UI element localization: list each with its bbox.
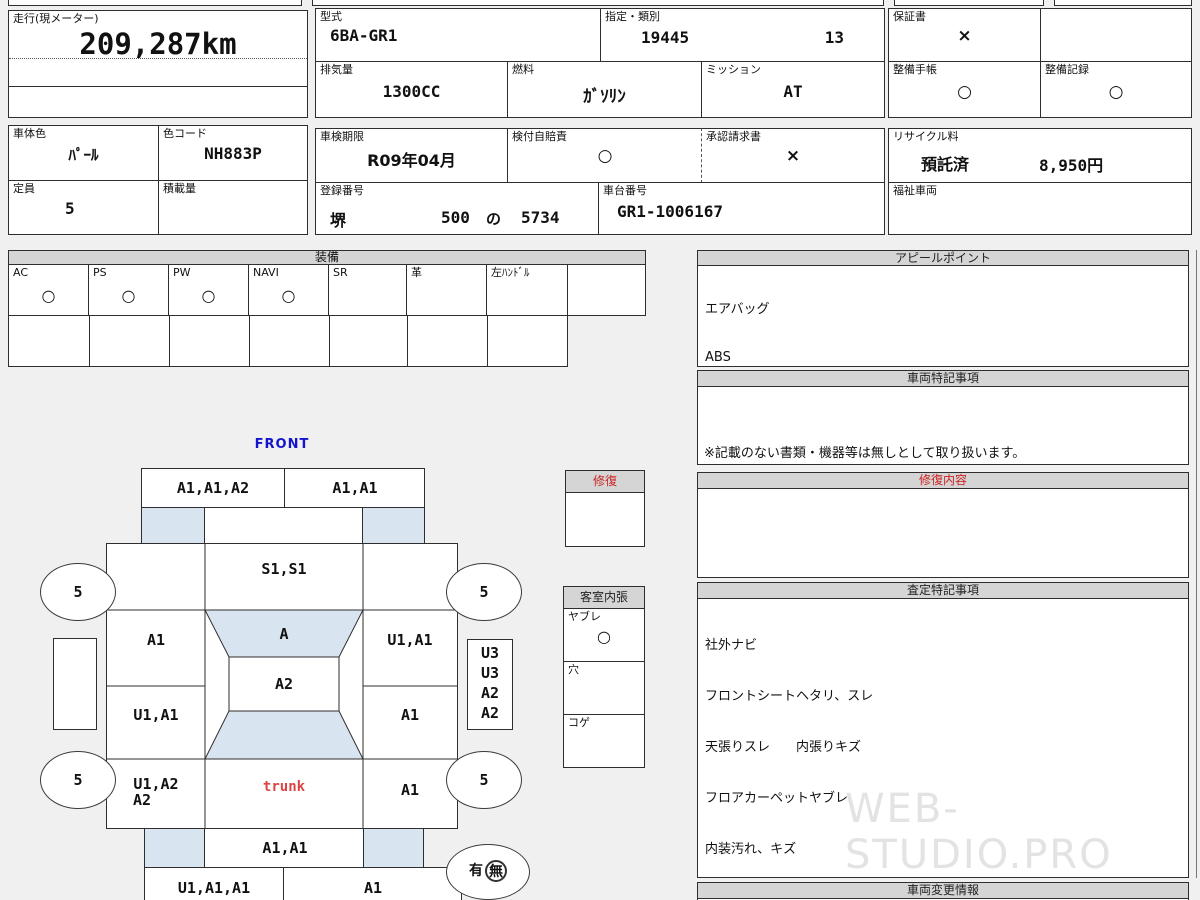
equipment-empty-row bbox=[8, 315, 568, 367]
capacity-label: 定員 bbox=[9, 181, 158, 196]
class-label: 指定・類別 bbox=[601, 9, 884, 24]
warranty-value: × bbox=[889, 26, 1040, 46]
front-bumper-left-codes: A1,A1,A2 bbox=[142, 480, 284, 496]
wheel-front-left: 5 bbox=[40, 563, 116, 621]
capacity-value: 5 bbox=[9, 199, 158, 218]
top-edge-fragment bbox=[894, 0, 1044, 6]
appeal-item: ABS bbox=[705, 350, 1181, 366]
equipment-label: NAVI bbox=[249, 265, 328, 280]
left-row3-line2: A2 bbox=[107, 792, 205, 808]
repair-mini-box: 修復 bbox=[565, 470, 645, 547]
recycle-fee-cell: リサイクル料 預託済 8,950円 bbox=[888, 128, 1192, 183]
spare-no-circled: 無 bbox=[485, 860, 507, 882]
right-side-codes: U3 U3 A2 A2 bbox=[468, 640, 512, 723]
warranty-label: 保証書 bbox=[889, 9, 1040, 24]
interior-row-value: ○ bbox=[564, 627, 644, 646]
maintenance-book-value: ○ bbox=[889, 82, 1040, 102]
jibaiseki-cell: 検付自賠責 ○ bbox=[507, 128, 702, 183]
appeal-points-box: アピールポイント エアバッグ ABS プッシュスタート ETC bbox=[697, 250, 1189, 367]
repair-mini-header: 修復 bbox=[566, 471, 644, 493]
front-label: FRONT bbox=[240, 437, 324, 452]
repair-details-header: 修復内容 bbox=[698, 473, 1188, 489]
wheel-score: 5 bbox=[73, 771, 82, 789]
equipment-cell-pw: PW ○ bbox=[168, 264, 249, 316]
side-code: A2 bbox=[468, 703, 512, 723]
equipment-label: SR bbox=[329, 265, 406, 280]
equipment-label: 革 bbox=[407, 265, 486, 280]
left-row2-codes: U1,A1 bbox=[107, 707, 205, 723]
capacity-cell: 定員 5 bbox=[8, 180, 159, 235]
model-code-cell: 型式 6BA-GR1 bbox=[315, 8, 601, 62]
left-row3-line1: U1,A2 bbox=[107, 776, 205, 792]
maintenance-book-label: 整備手帳 bbox=[889, 62, 1040, 77]
transmission-value: AT bbox=[702, 82, 884, 101]
wheel-score: 5 bbox=[479, 583, 488, 601]
equipment-cell-blank bbox=[567, 264, 646, 316]
divider bbox=[89, 316, 90, 366]
equipment-cell-lhd: 左ﾊﾝﾄﾞﾙ bbox=[486, 264, 568, 316]
maintenance-book-cell: 整備手帳 ○ bbox=[888, 61, 1041, 118]
side-code: U3 bbox=[468, 663, 512, 683]
divider bbox=[249, 316, 250, 366]
assessment-notes-title: 査定特記事項 bbox=[907, 583, 979, 597]
vehicle-notes-header: 車両特記事項 bbox=[698, 371, 1188, 387]
rear-bottom-right-codes: A1 bbox=[283, 880, 463, 896]
empty-cell bbox=[1040, 8, 1192, 62]
equipment-value: ○ bbox=[169, 286, 248, 305]
class-value-1: 19445 bbox=[641, 28, 689, 47]
assessment-item: 天張りスレ 内張りキズ bbox=[705, 739, 1181, 756]
equipment-label bbox=[568, 265, 645, 267]
maintenance-record-cell: 整備記録 ○ bbox=[1040, 61, 1192, 118]
watermark: WEB-STUDIO.PRO bbox=[845, 786, 1200, 878]
rear-left-corner bbox=[145, 829, 205, 867]
recycle-fee-label: リサイクル料 bbox=[889, 129, 1191, 144]
class-cell: 指定・類別 19445 13 bbox=[600, 8, 885, 62]
color-code-value: NH883P bbox=[159, 144, 307, 163]
chassis-number-cell: 車台番号 GR1-1006167 bbox=[598, 182, 885, 235]
wheel-front-right: 5 bbox=[446, 563, 522, 621]
load-capacity-label: 積載量 bbox=[159, 181, 307, 196]
equipment-label: PS bbox=[89, 265, 168, 280]
right-row2-codes: A1 bbox=[363, 707, 457, 723]
top-edge-fragment bbox=[8, 0, 302, 6]
inspection-expiry-label: 車検期限 bbox=[316, 129, 507, 144]
warranty-cell: 保証書 × bbox=[888, 8, 1041, 62]
transmission-cell: ミッション AT bbox=[701, 61, 885, 118]
fuel-label: 燃料 bbox=[508, 62, 701, 77]
equipment-cell-leather: 革 bbox=[406, 264, 487, 316]
front-bumper-right-codes: A1,A1 bbox=[284, 480, 426, 496]
interior-row-ana: 穴 bbox=[564, 662, 644, 715]
displacement-value: 1300CC bbox=[316, 82, 507, 101]
class-value-2: 13 bbox=[825, 28, 844, 47]
fuel-cell: 燃料 ｶﾞｿﾘﾝ bbox=[507, 61, 702, 118]
top-edge-fragment bbox=[312, 0, 884, 6]
right-row1-codes: U1,A1 bbox=[363, 632, 457, 648]
interior-header: 客室内張 bbox=[564, 587, 644, 609]
divider bbox=[169, 316, 170, 366]
assessment-item: 社外ナビ bbox=[705, 637, 1181, 654]
equipment-value: ○ bbox=[249, 286, 328, 305]
rear-window-shape bbox=[205, 711, 363, 759]
right-margin-line bbox=[1196, 250, 1197, 878]
side-code: U3 bbox=[468, 643, 512, 663]
approval-request-cell: 承認請求書 × bbox=[701, 128, 885, 183]
body-color-value: ﾊﾟｰﾙ bbox=[9, 144, 158, 165]
interior-row-yabure: ヤブレ ○ bbox=[564, 609, 644, 662]
front-left-corner bbox=[142, 508, 205, 543]
appeal-item: エアバッグ bbox=[705, 302, 1181, 318]
front-fender-strip bbox=[141, 507, 425, 544]
body-color-cell: 車体色 ﾊﾟｰﾙ bbox=[8, 125, 159, 181]
equipment-cell-sr: SR bbox=[328, 264, 407, 316]
color-code-cell: 色コード NH883P bbox=[158, 125, 308, 181]
equipment-header: 装備 bbox=[8, 250, 646, 265]
rear-bottom-row: U1,A1,A1 A1 bbox=[144, 867, 462, 900]
inspection-expiry-value: R09年04月 bbox=[316, 147, 507, 171]
odometer-value: 209,287km bbox=[9, 27, 307, 61]
right-side-codes-box: U3 U3 A2 A2 bbox=[467, 639, 513, 730]
chassis-number-label: 車台番号 bbox=[599, 183, 884, 198]
appeal-points-header: アピールポイント bbox=[698, 251, 1188, 266]
transmission-label: ミッション bbox=[702, 62, 884, 77]
rear-bumper: A1,A1 bbox=[144, 828, 424, 868]
registration-number-cell: 登録番号 堺 500 の 5734 bbox=[315, 182, 599, 235]
wheel-rear-left: 5 bbox=[40, 751, 116, 809]
repair-mini-title: 修復 bbox=[593, 474, 617, 488]
front-right-corner bbox=[362, 508, 424, 543]
spare-yes-label: 有 bbox=[469, 863, 483, 879]
reg-class: 500 bbox=[441, 208, 470, 227]
recycle-amount: 8,950円 bbox=[1039, 152, 1103, 176]
interior-row-koge: コゲ bbox=[564, 715, 644, 767]
left-row3-codes: U1,A2 A2 bbox=[107, 776, 205, 808]
spare-indicator: 有無 bbox=[446, 844, 530, 900]
appeal-points-title: アピールポイント bbox=[895, 251, 991, 265]
change-info-box: 車両変更情報 bbox=[697, 882, 1189, 900]
divider bbox=[9, 86, 307, 87]
auction-sheet: 走行(現メーター) 209,287km 車体色 ﾊﾟｰﾙ 色コード NH883P… bbox=[0, 0, 1200, 900]
model-code-label: 型式 bbox=[316, 9, 600, 24]
color-code-label: 色コード bbox=[159, 126, 307, 141]
windshield-code: A bbox=[205, 626, 363, 642]
recycle-status: 預託済 bbox=[921, 151, 969, 175]
body-color-label: 車体色 bbox=[9, 126, 158, 141]
odometer-cell: 走行(現メーター) 209,287km bbox=[8, 10, 308, 118]
equipment-title: 装備 bbox=[9, 251, 645, 264]
reg-number: 5734 bbox=[521, 208, 560, 227]
interior-title: 客室内張 bbox=[580, 590, 628, 604]
right-row3-codes: A1 bbox=[363, 782, 457, 798]
approval-request-label: 承認請求書 bbox=[702, 129, 884, 144]
inspection-expiry-cell: 車検期限 R09年04月 bbox=[315, 128, 508, 183]
equipment-cell-ac: AC ○ bbox=[8, 264, 89, 316]
rear-bumper-codes: A1,A1 bbox=[205, 840, 365, 856]
displacement-cell: 排気量 1300CC bbox=[315, 61, 508, 118]
interior-row-label: コゲ bbox=[564, 715, 644, 730]
model-code-value: 6BA-GR1 bbox=[316, 26, 600, 45]
odometer-label: 走行(現メーター) bbox=[9, 11, 307, 26]
top-edge-fragment bbox=[1054, 0, 1192, 6]
rear-bottom-left-codes: U1,A1,A1 bbox=[145, 880, 283, 896]
repair-details-box: 修復内容 bbox=[697, 472, 1189, 578]
interior-box: 客室内張 ヤブレ ○ 穴 コゲ bbox=[563, 586, 645, 768]
hood-codes: S1,S1 bbox=[205, 561, 363, 577]
vehicle-notes-title: 車両特記事項 bbox=[907, 371, 979, 385]
fuel-value: ｶﾞｿﾘﾝ bbox=[508, 82, 701, 107]
vehicle-notes-box: 車両特記事項 ※記載のない書類・機器等は無しとして取り扱います。 bbox=[697, 370, 1189, 465]
change-info-header: 車両変更情報 bbox=[698, 883, 1188, 899]
reg-area: 堺 bbox=[330, 207, 346, 231]
front-bumper: A1,A1,A2 A1,A1 bbox=[141, 468, 425, 508]
divider bbox=[329, 316, 330, 366]
vehicle-notes-footnote: ※記載のない書類・機器等は無しとして取り扱います。 bbox=[704, 442, 1025, 461]
assessment-notes-header: 査定特記事項 bbox=[698, 583, 1188, 599]
divider bbox=[487, 316, 488, 366]
side-code: A2 bbox=[468, 683, 512, 703]
approval-request-value: × bbox=[702, 146, 884, 166]
equipment-label: AC bbox=[9, 265, 88, 280]
divider bbox=[407, 316, 408, 366]
assessment-item: フロントシートヘタリ、スレ bbox=[705, 688, 1181, 705]
equipment-label: PW bbox=[169, 265, 248, 280]
jibaiseki-label: 検付自賠責 bbox=[508, 129, 702, 144]
maintenance-record-value: ○ bbox=[1041, 82, 1191, 102]
repair-details-title: 修復内容 bbox=[919, 473, 967, 487]
left-row1-codes: A1 bbox=[107, 632, 205, 648]
load-capacity-cell: 積載量 bbox=[158, 180, 308, 235]
equipment-value: ○ bbox=[89, 286, 168, 305]
equipment-value: ○ bbox=[9, 286, 88, 305]
jibaiseki-value: ○ bbox=[508, 146, 702, 166]
left-side-box bbox=[53, 638, 97, 730]
change-info-title: 車両変更情報 bbox=[907, 883, 979, 897]
wheel-rear-right: 5 bbox=[446, 751, 522, 809]
maintenance-record-label: 整備記録 bbox=[1041, 62, 1191, 77]
car-body: S1,S1 A A2 trunk A1 U1,A1 U1,A2 A2 U1,A1… bbox=[106, 543, 458, 829]
displacement-label: 排気量 bbox=[316, 62, 507, 77]
equipment-cell-navi: NAVI ○ bbox=[248, 264, 329, 316]
interior-row-label: ヤブレ bbox=[564, 609, 644, 624]
reg-kana: の bbox=[486, 208, 501, 229]
equipment-cell-ps: PS ○ bbox=[88, 264, 169, 316]
welfare-vehicle-label: 福祉車両 bbox=[889, 183, 1191, 198]
roof-code: A2 bbox=[229, 676, 339, 692]
chassis-number-value: GR1-1006167 bbox=[599, 202, 884, 221]
trunk-label: trunk bbox=[205, 779, 363, 795]
rear-right-corner bbox=[363, 829, 423, 867]
wheel-score: 5 bbox=[479, 771, 488, 789]
equipment-label: 左ﾊﾝﾄﾞﾙ bbox=[487, 265, 567, 280]
dashed-divider bbox=[9, 58, 307, 59]
wheel-score: 5 bbox=[73, 583, 82, 601]
welfare-vehicle-cell: 福祉車両 bbox=[888, 182, 1192, 235]
registration-number-label: 登録番号 bbox=[316, 183, 598, 198]
interior-row-label: 穴 bbox=[564, 662, 644, 677]
